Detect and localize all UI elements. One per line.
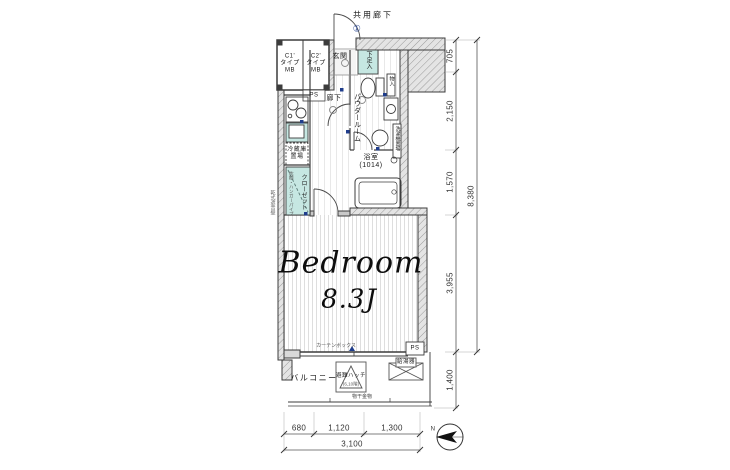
label-water-heater: 給湯器 xyxy=(397,359,415,365)
label-washing-machine: 洗濯機置場 xyxy=(395,126,400,151)
dim-bottom-680: 680 xyxy=(292,423,306,432)
label-pipe-space-top: PS xyxy=(309,92,318,99)
label-bedroom-size: 8.3J xyxy=(321,285,377,316)
label-escape-hatch: 避難ハッチ xyxy=(336,373,366,379)
label-entrance: 玄関 xyxy=(333,53,348,61)
label-closet-note: 枕棚・ハンガーパイプ xyxy=(289,171,294,216)
label-common-corridor: 共用廊下 xyxy=(353,10,393,19)
label-bathroom: 浴室 (1014) xyxy=(359,154,382,171)
label-refrigerator: 冷蔵庫 置場 xyxy=(287,147,307,161)
compass-icon xyxy=(436,424,463,450)
dim-bottom-total: 3,100 xyxy=(341,439,363,448)
dim-right-1400: 1,400 xyxy=(445,369,454,391)
dimension-lines-right xyxy=(434,37,480,411)
dim-right-1570: 1,570 xyxy=(445,171,454,193)
dim-right-2150: 2,150 xyxy=(445,100,454,122)
label-shoe-cabinet: 下足入 xyxy=(365,51,371,69)
compass-north-label: N xyxy=(431,426,436,433)
label-meter-box-2: C2' タイプ MB xyxy=(306,53,326,74)
label-party-wall-note: 乾式遮音壁 xyxy=(270,190,275,215)
dim-bottom-1300: 1,300 xyxy=(381,423,403,432)
label-laundry-fitting: 物干金物 xyxy=(352,395,372,401)
label-storage: 物入 xyxy=(389,76,394,86)
dim-right-total: 8,380 xyxy=(466,185,475,207)
dim-bottom-1120: 1,120 xyxy=(328,423,350,432)
dim-right-705: 705 xyxy=(445,49,454,63)
door-number-badge: ① xyxy=(353,24,362,35)
label-hallway: 廊下 xyxy=(327,95,342,103)
label-meter-box-1: C1' タイプ MB xyxy=(280,53,300,74)
label-curtain-box: カーテンボックス xyxy=(316,344,356,350)
label-bedroom-name: Bedroom xyxy=(279,245,424,280)
dim-right-3955: 3,955 xyxy=(445,272,454,294)
floorplan-page: 共用廊下 ① 玄関 下足入 C1' タイプ MB C2' タイプ MB PS 廊… xyxy=(0,0,730,470)
label-closet: クローゼット xyxy=(300,174,306,210)
label-powder-room: パウダールーム xyxy=(354,93,361,142)
label-pipe-space-bottom: PS xyxy=(410,345,419,352)
label-escape-hatch-note: (6,10階) xyxy=(343,381,359,386)
label-balcony: バルコニー xyxy=(290,373,337,382)
